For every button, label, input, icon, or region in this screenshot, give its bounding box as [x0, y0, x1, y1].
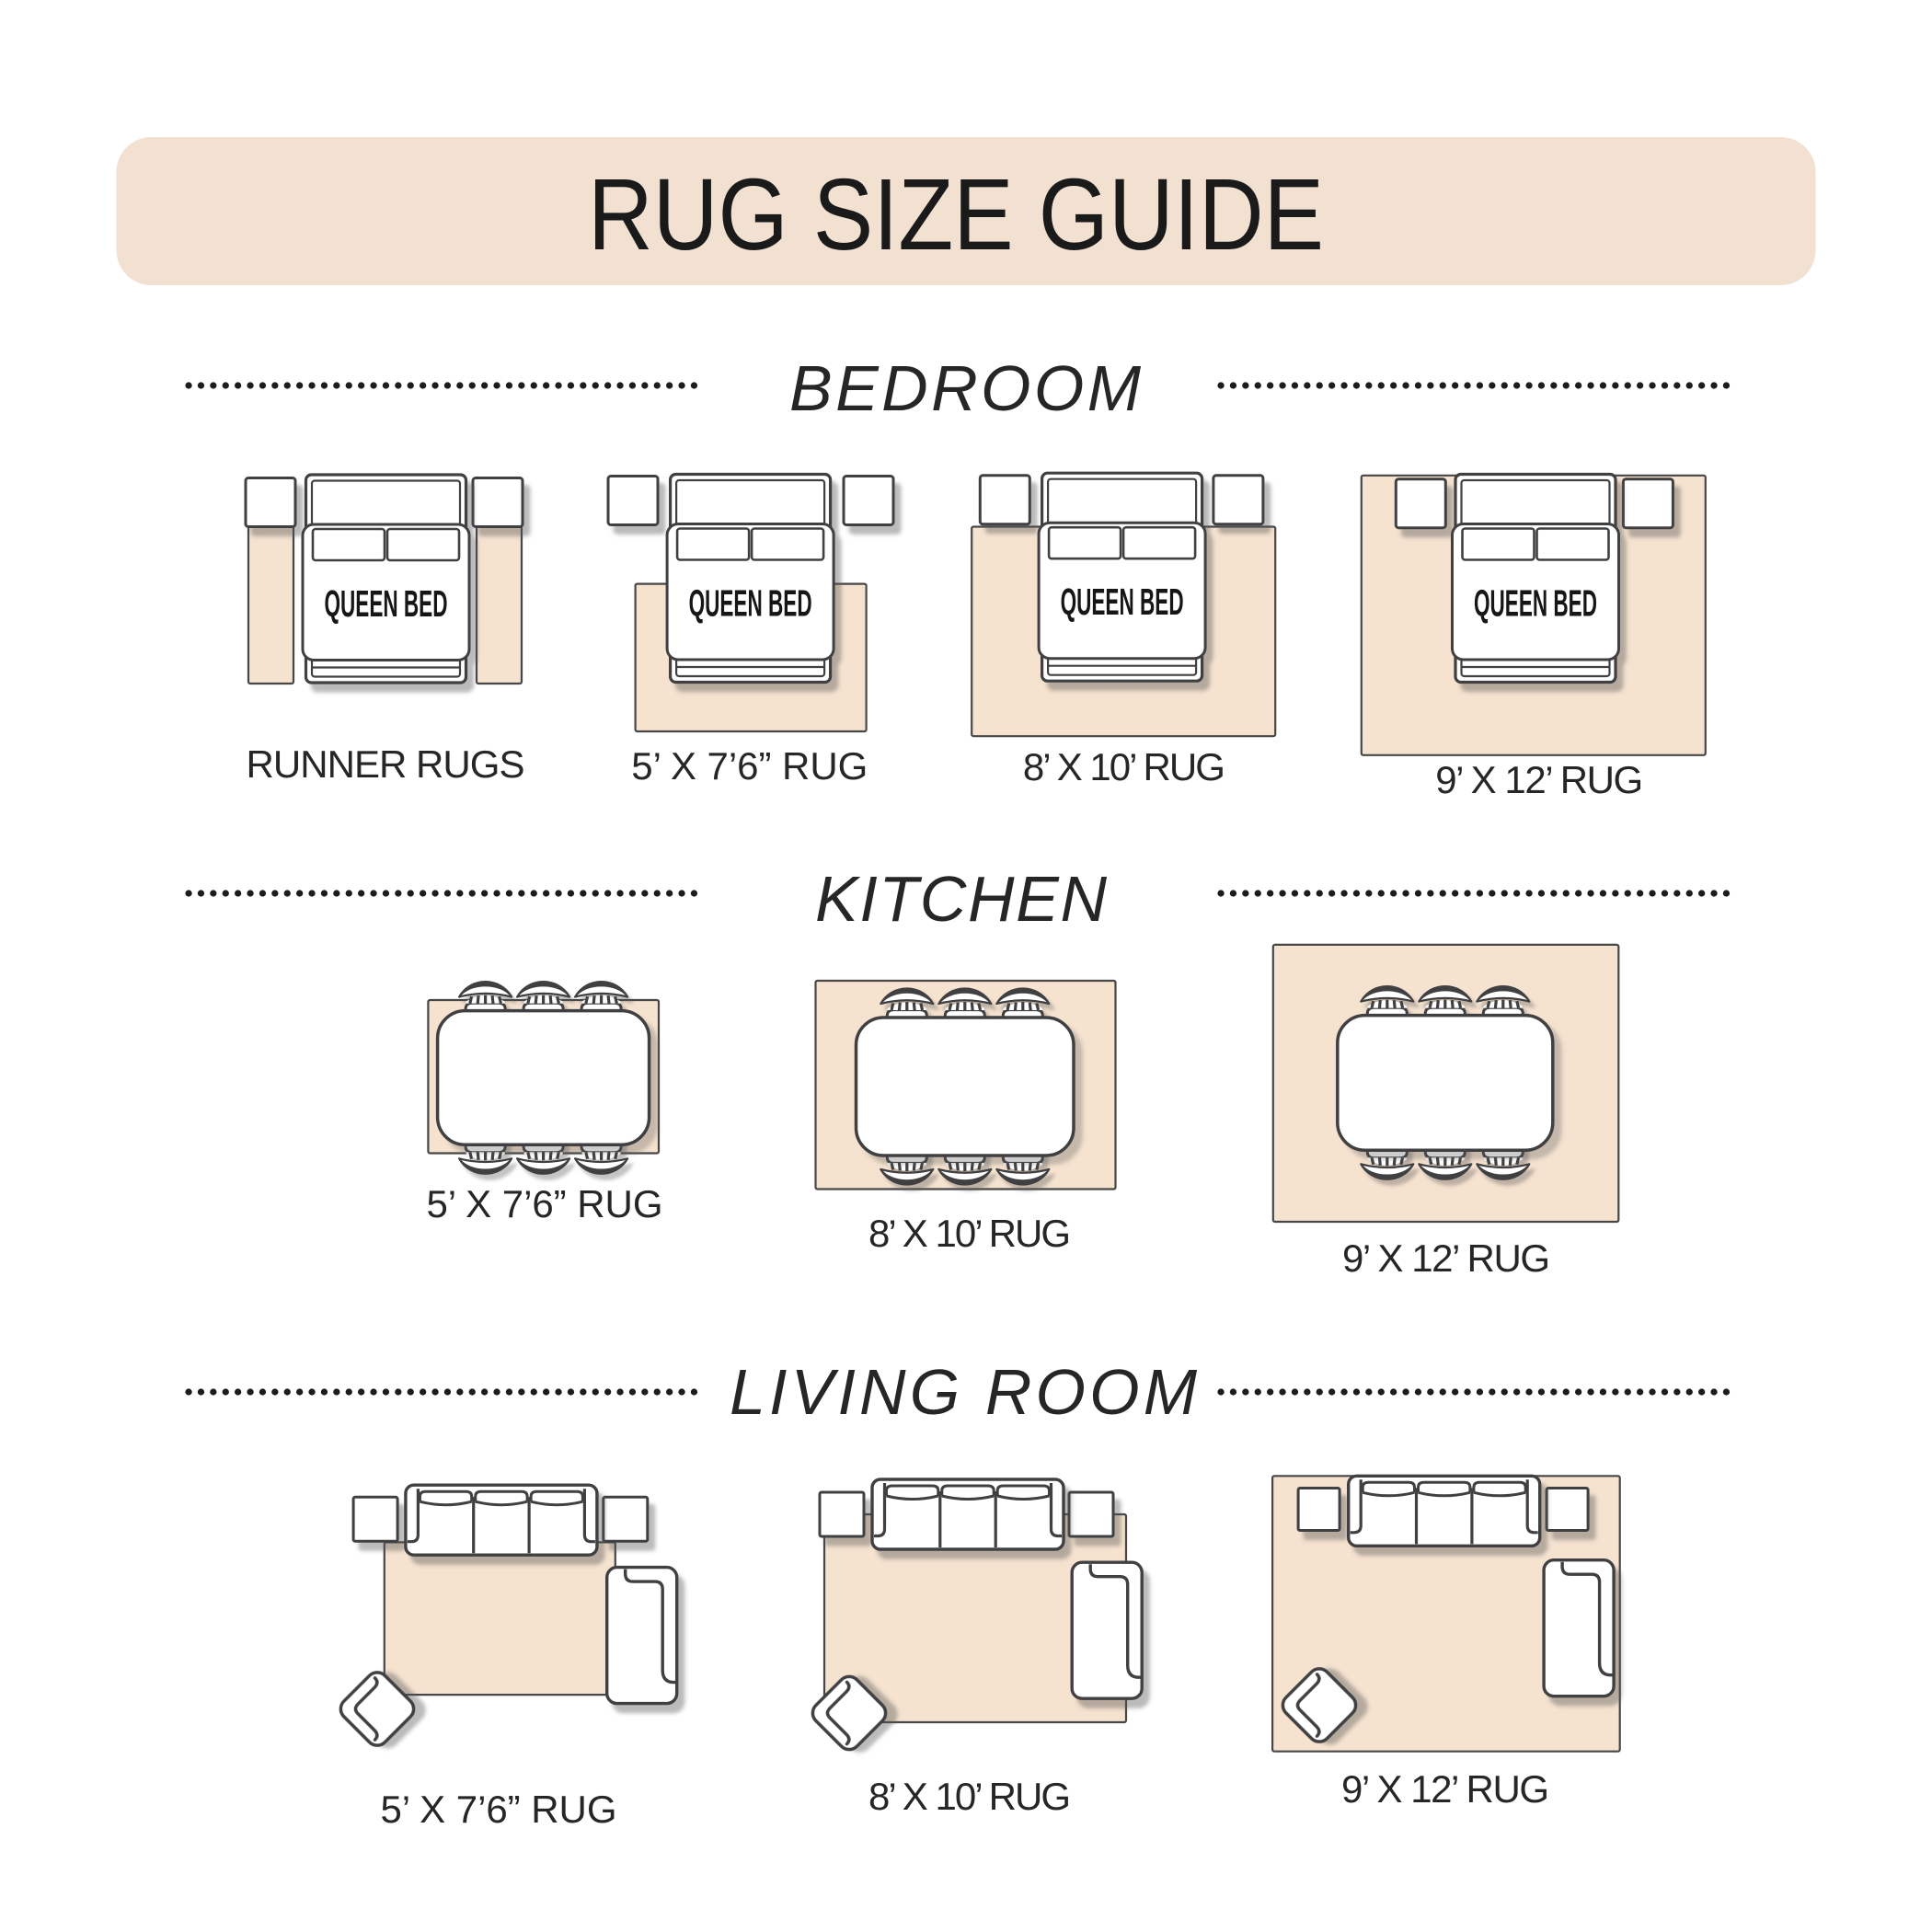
svg-text:8’ X 10’ RUG: 8’ X 10’ RUG	[868, 1775, 1071, 1818]
svg-text:KITCHEN: KITCHEN	[815, 863, 1107, 935]
svg-text:5’ X 7’6” RUG: 5’ X 7’6” RUG	[427, 1182, 663, 1225]
svg-text:LIVING ROOM: LIVING ROOM	[730, 1356, 1198, 1428]
svg-text:9’ X 12’ RUG: 9’ X 12’ RUG	[1342, 1236, 1550, 1280]
svg-text:9’ X 12’ RUG: 9’ X 12’ RUG	[1341, 1767, 1549, 1811]
svg-text:QUEEN BED: QUEEN BED	[325, 582, 448, 625]
svg-text:9’ X 12’ RUG: 9’ X 12’ RUG	[1435, 758, 1643, 801]
svg-text:QUEEN BED: QUEEN BED	[1061, 581, 1184, 623]
svg-text:5’ X 7’6” RUG: 5’ X 7’6” RUG	[631, 744, 868, 788]
svg-text:BEDROOM: BEDROOM	[789, 352, 1142, 424]
svg-text:8’ X 10’ RUG: 8’ X 10’ RUG	[868, 1212, 1071, 1255]
svg-text:RUG SIZE GUIDE: RUG SIZE GUIDE	[588, 158, 1324, 271]
svg-text:RUNNER RUGS: RUNNER RUGS	[247, 742, 525, 786]
svg-text:8’ X 10’ RUG: 8’ X 10’ RUG	[1023, 745, 1225, 788]
svg-text:QUEEN BED: QUEEN BED	[1474, 582, 1597, 625]
svg-text:QUEEN BED: QUEEN BED	[689, 582, 812, 625]
svg-text:5’ X 7’6” RUG: 5’ X 7’6” RUG	[381, 1788, 617, 1831]
